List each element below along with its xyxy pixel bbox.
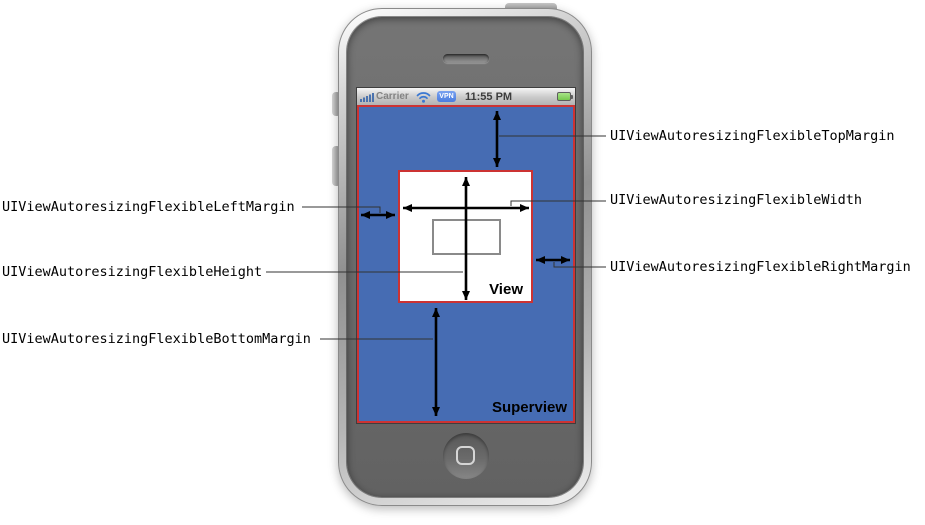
wifi-icon (416, 91, 431, 103)
label-flexible-top-margin: UIViewAutoresizingFlexibleTopMargin (610, 129, 894, 144)
home-button (443, 433, 489, 479)
label-flexible-bottom-margin: UIViewAutoresizingFlexibleBottomMargin (2, 332, 311, 347)
label-flexible-height: UIViewAutoresizingFlexibleHeight (2, 265, 262, 280)
superview-label: Superview (492, 399, 567, 416)
label-flexible-left-margin: UIViewAutoresizingFlexibleLeftMargin (2, 200, 295, 215)
view-box: View (398, 170, 533, 303)
vpn-badge: VPN (437, 91, 456, 102)
view-label: View (489, 281, 523, 298)
home-square-icon (456, 446, 475, 465)
label-flexible-width: UIViewAutoresizingFlexibleWidth (610, 193, 862, 208)
battery-nub (571, 95, 574, 99)
speaker-icon (443, 54, 489, 63)
signal-strength-icon (360, 92, 374, 102)
status-bar: Carrier VPN 11:55 PM (357, 88, 575, 105)
battery-icon (557, 92, 571, 101)
autoresizing-diagram: Carrier VPN 11:55 PM Superview View UIVi… (0, 0, 925, 525)
clock-label: 11:55 PM (465, 91, 512, 103)
content-rect (432, 219, 501, 255)
carrier-label: Carrier (376, 91, 409, 102)
label-flexible-right-margin: UIViewAutoresizingFlexibleRightMargin (610, 260, 911, 275)
